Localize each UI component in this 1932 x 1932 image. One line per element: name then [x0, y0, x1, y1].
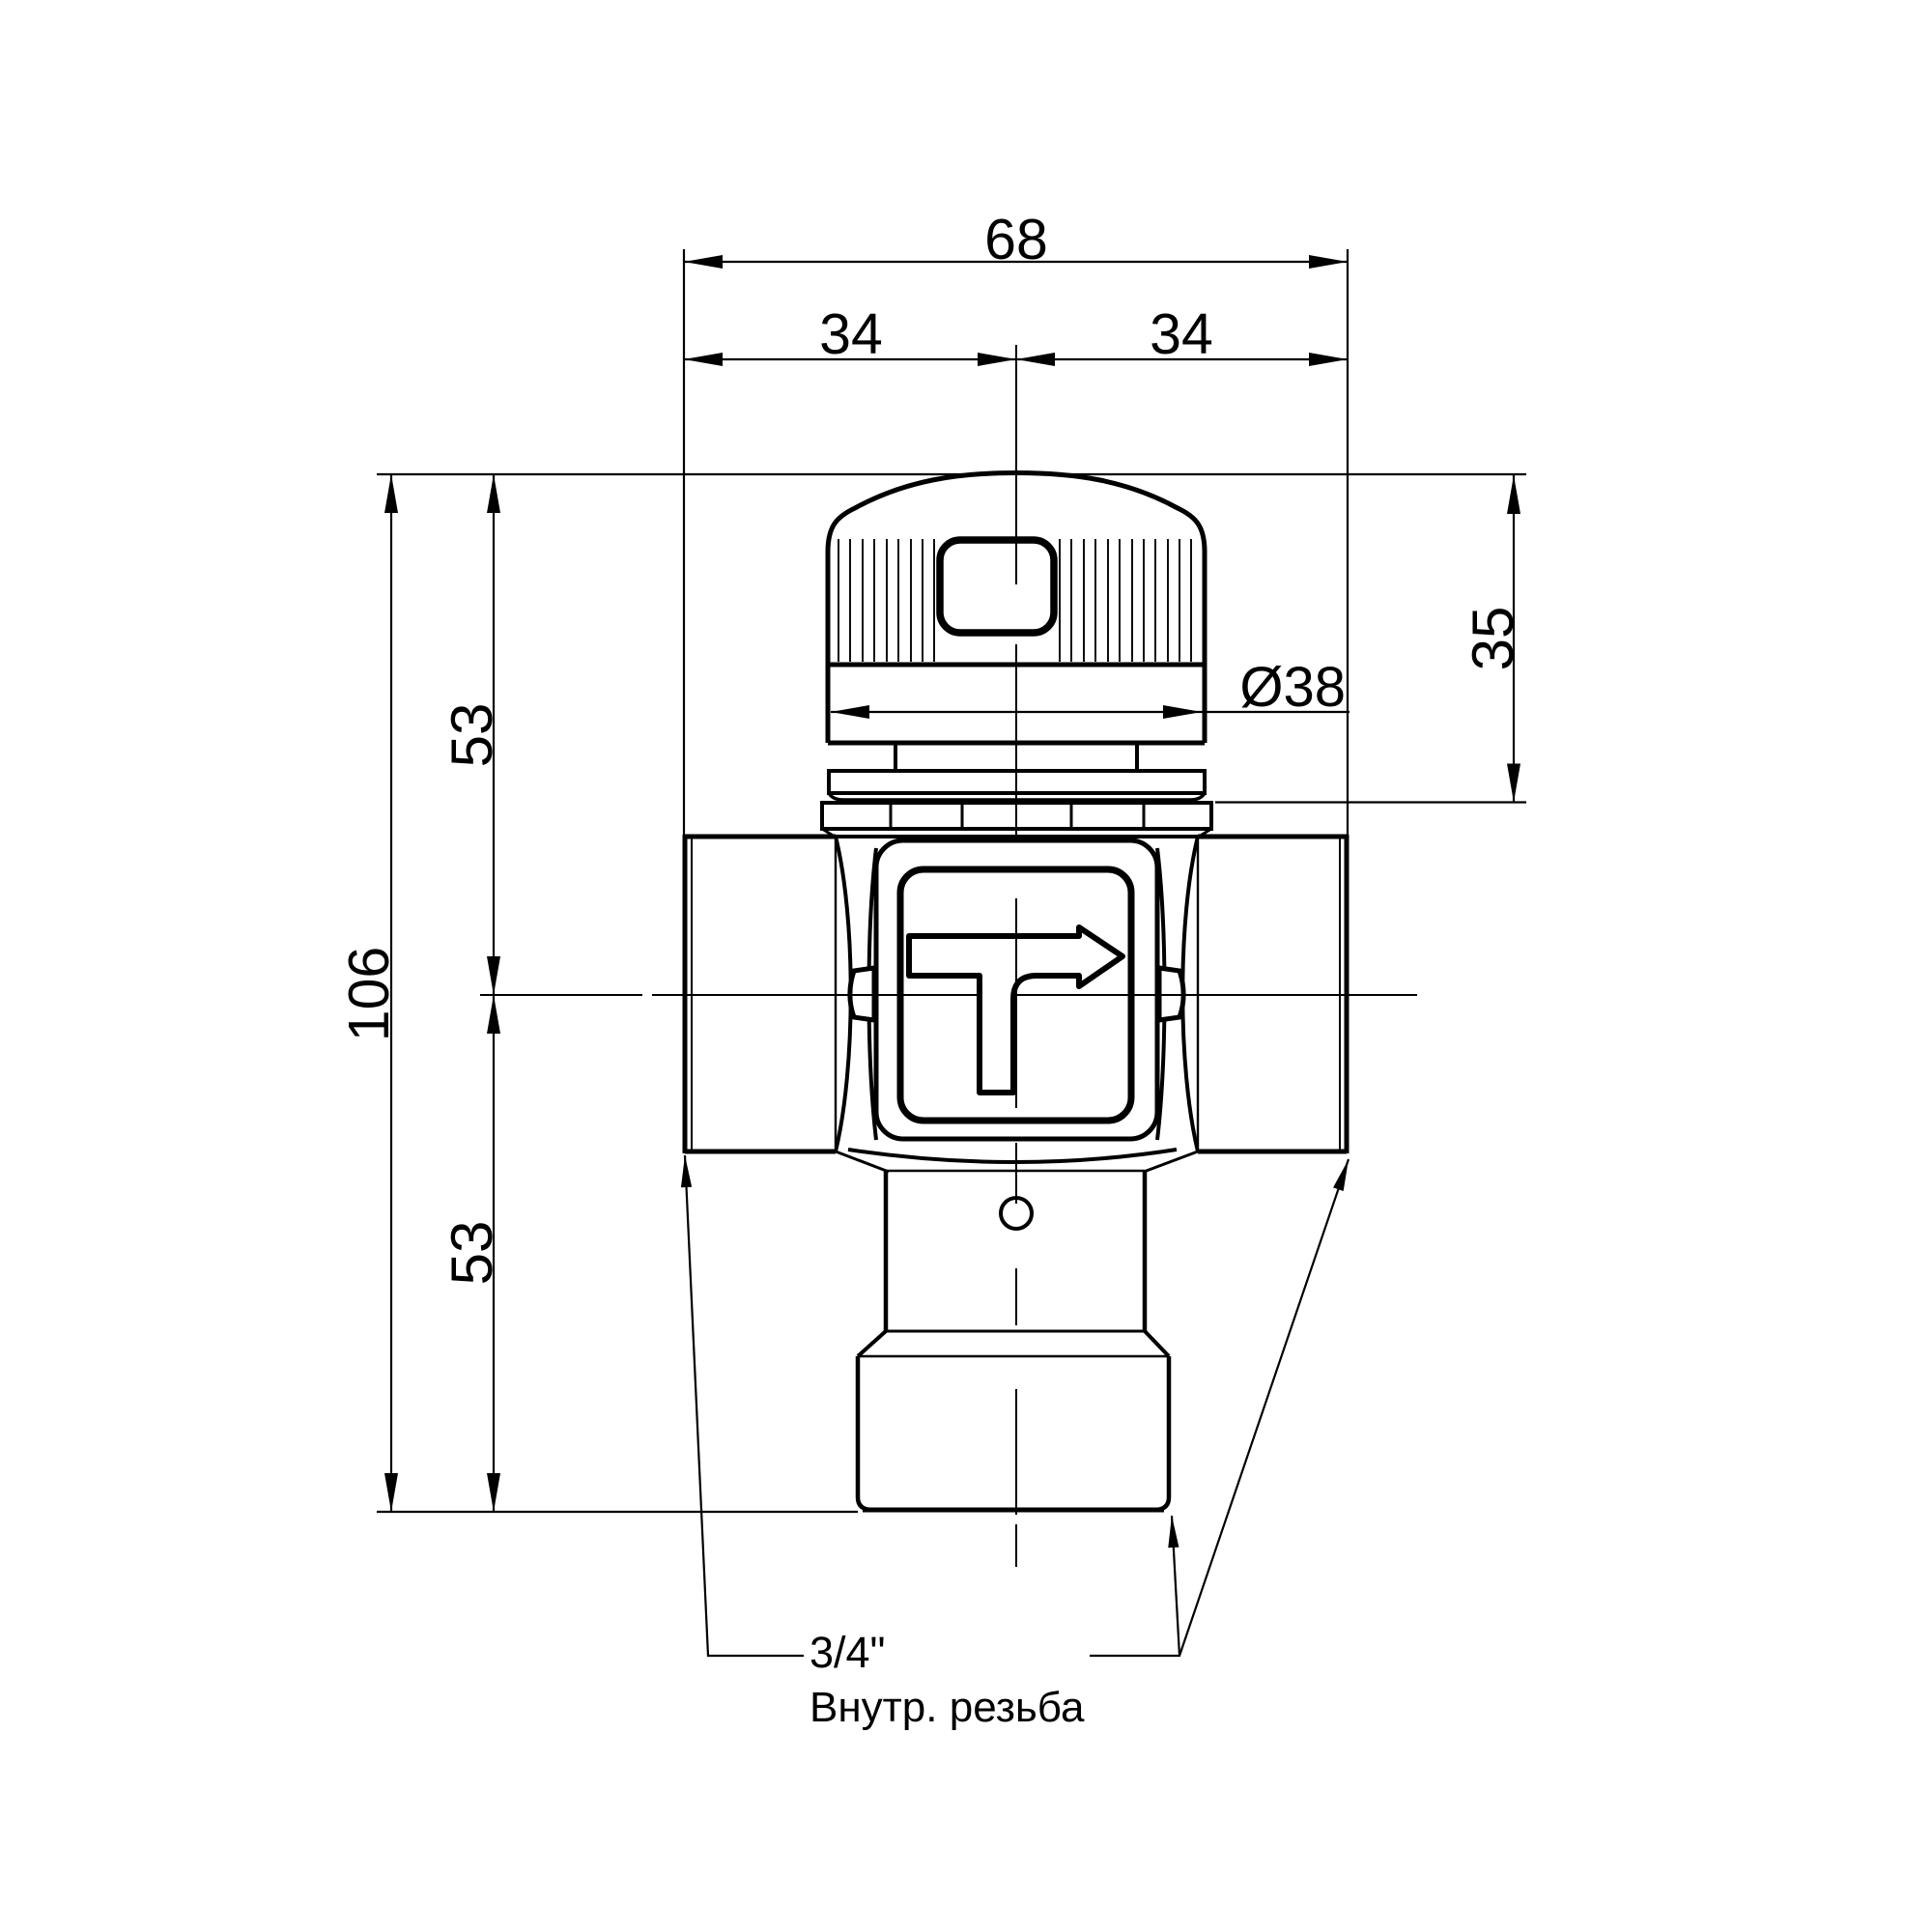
svg-text:3/4": 3/4" — [810, 1628, 886, 1677]
svg-text:35: 35 — [1461, 607, 1525, 671]
svg-text:34: 34 — [1150, 302, 1213, 366]
svg-text:106: 106 — [337, 947, 401, 1041]
svg-text:34: 34 — [819, 302, 883, 366]
svg-text:53: 53 — [440, 1221, 504, 1286]
svg-text:53: 53 — [440, 703, 504, 768]
svg-text:68: 68 — [984, 208, 1048, 271]
svg-text:Внутр. резьба: Внутр. резьба — [810, 1684, 1085, 1731]
svg-text:Ø38: Ø38 — [1239, 656, 1346, 719]
